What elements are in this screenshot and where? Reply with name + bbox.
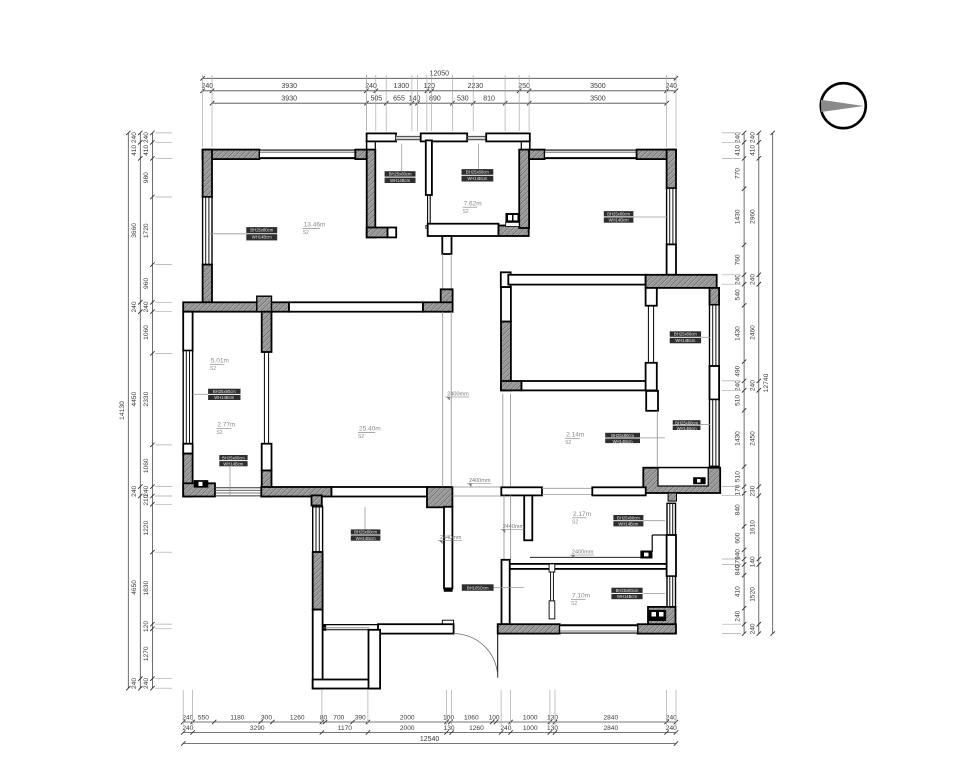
svg-text:240: 240	[143, 678, 150, 689]
svg-text:240: 240	[735, 610, 742, 621]
svg-text:2440mm: 2440mm	[503, 524, 525, 530]
svg-text:770: 770	[735, 168, 742, 179]
svg-text:5.01m: 5.01m	[211, 358, 229, 365]
svg-text:240: 240	[182, 715, 193, 722]
svg-text:1220: 1220	[143, 521, 150, 536]
svg-text:2.14m: 2.14m	[566, 432, 584, 439]
svg-text:120: 120	[423, 83, 435, 90]
svg-text:240: 240	[143, 301, 150, 312]
svg-text:WH14Bcm: WH14Bcm	[675, 338, 696, 343]
svg-text:1170: 1170	[338, 725, 353, 732]
svg-text:490: 490	[735, 365, 742, 376]
svg-text:BH25x80cm: BH25x80cm	[389, 172, 412, 177]
svg-text:410: 410	[143, 145, 150, 156]
svg-text:655: 655	[393, 96, 405, 103]
svg-text:170: 170	[735, 484, 742, 495]
svg-text:1610: 1610	[749, 520, 756, 535]
svg-text:980: 980	[143, 172, 150, 183]
svg-text:240: 240	[749, 274, 756, 285]
svg-text:BH25x80cm: BH25x80cm	[250, 227, 273, 232]
svg-text:510: 510	[735, 395, 742, 406]
svg-text:120: 120	[143, 621, 150, 632]
svg-text:240: 240	[365, 83, 377, 90]
svg-text:3930: 3930	[281, 83, 297, 90]
svg-text:BH25x80cm: BH25x80cm	[607, 211, 630, 216]
svg-text:WH14Bcm: WH14Bcm	[356, 536, 377, 541]
svg-text:WH14Bcm: WH14Bcm	[618, 522, 639, 527]
svg-text:2.77m: 2.77m	[217, 422, 235, 429]
svg-text:1060: 1060	[143, 325, 150, 340]
svg-text:2840: 2840	[603, 725, 618, 732]
svg-text:1060: 1060	[143, 458, 150, 473]
svg-text:4650: 4650	[131, 580, 138, 595]
svg-text:2400mm: 2400mm	[469, 478, 491, 484]
svg-text:130: 130	[547, 715, 558, 722]
svg-text:100: 100	[443, 715, 454, 722]
svg-text:2960: 2960	[749, 209, 756, 224]
svg-text:2.17m: 2.17m	[573, 511, 591, 518]
svg-text:WH14Bcm: WH14Bcm	[613, 439, 634, 444]
svg-text:1260: 1260	[469, 725, 484, 732]
svg-text:3930: 3930	[281, 96, 297, 103]
svg-text:600: 600	[735, 532, 742, 543]
svg-text:890: 890	[429, 96, 441, 103]
svg-text:1000: 1000	[523, 715, 538, 722]
svg-text:300: 300	[261, 715, 272, 722]
svg-text:S2: S2	[216, 430, 222, 436]
svg-text:3660: 3660	[131, 223, 138, 238]
svg-text:3500: 3500	[590, 96, 606, 103]
svg-text:BH25x80cm: BH25x80cm	[611, 433, 634, 438]
svg-text:240: 240	[665, 83, 677, 90]
svg-text:WH14Bcm: WH14Bcm	[617, 594, 638, 599]
svg-text:2400mm: 2400mm	[572, 550, 594, 556]
svg-text:BH25x80cm: BH25x80cm	[617, 515, 640, 520]
svg-text:410: 410	[749, 145, 756, 156]
svg-text:12540: 12540	[420, 736, 440, 743]
svg-text:250: 250	[518, 83, 530, 90]
svg-text:240: 240	[749, 623, 756, 634]
svg-text:240: 240	[131, 301, 138, 312]
svg-text:240: 240	[749, 380, 756, 391]
svg-text:240: 240	[182, 725, 193, 732]
svg-text:BH25x80cm: BH25x80cm	[213, 389, 236, 394]
svg-text:1430: 1430	[735, 431, 742, 446]
svg-text:530: 530	[457, 96, 469, 103]
svg-text:2330: 2330	[143, 391, 150, 406]
svg-text:210: 210	[143, 494, 150, 505]
svg-text:BH105Ocm: BH105Ocm	[467, 586, 489, 591]
svg-text:840: 840	[735, 564, 742, 575]
svg-text:240: 240	[143, 132, 150, 143]
svg-text:3500: 3500	[590, 83, 606, 90]
svg-text:140: 140	[749, 556, 756, 567]
svg-text:130: 130	[547, 725, 558, 732]
svg-text:12050: 12050	[430, 71, 450, 78]
svg-text:S2: S2	[463, 209, 469, 215]
svg-text:WH14Bcm: WH14Bcm	[223, 461, 244, 466]
svg-text:3290: 3290	[250, 725, 265, 732]
svg-text:WH14Bcm: WH14Bcm	[677, 426, 698, 431]
svg-text:S2: S2	[572, 520, 578, 526]
svg-text:1060: 1060	[464, 715, 479, 722]
svg-text:1270: 1270	[143, 646, 150, 661]
svg-text:140: 140	[409, 96, 421, 103]
svg-text:505: 505	[370, 96, 382, 103]
svg-text:100: 100	[489, 715, 500, 722]
svg-text:2230: 2230	[468, 83, 484, 90]
svg-text:1720: 1720	[143, 223, 150, 238]
svg-text:S2: S2	[210, 366, 216, 372]
svg-text:240: 240	[735, 380, 742, 391]
svg-text:WH14Bcm: WH14Bcm	[214, 395, 235, 400]
svg-text:510: 510	[735, 471, 742, 482]
svg-text:80: 80	[320, 715, 328, 722]
svg-text:2400mm: 2400mm	[447, 392, 469, 398]
svg-text:BH25x80cm: BH25x80cm	[616, 588, 639, 593]
svg-text:1830: 1830	[143, 581, 150, 596]
svg-text:240: 240	[666, 715, 677, 722]
svg-text:1300: 1300	[394, 83, 410, 90]
svg-text:7.62m: 7.62m	[464, 200, 482, 207]
svg-text:390: 390	[355, 715, 366, 722]
svg-text:1430: 1430	[735, 209, 742, 224]
svg-text:960: 960	[143, 278, 150, 289]
svg-text:S2: S2	[303, 230, 309, 236]
svg-text:BH25x80cm: BH25x80cm	[354, 530, 377, 535]
svg-text:S2: S2	[571, 601, 577, 607]
svg-text:WH14Bcm: WH14Bcm	[252, 235, 273, 240]
svg-text:25.40m: 25.40m	[359, 426, 381, 433]
svg-text:S2: S2	[565, 440, 571, 446]
svg-text:230: 230	[749, 485, 756, 496]
svg-text:2450: 2450	[749, 431, 756, 446]
svg-text:410: 410	[735, 145, 742, 156]
svg-text:840: 840	[735, 504, 742, 515]
svg-text:4450: 4450	[131, 391, 138, 406]
svg-text:240: 240	[666, 725, 677, 732]
svg-text:12740: 12740	[763, 373, 770, 392]
svg-text:240: 240	[131, 678, 138, 689]
svg-text:240: 240	[500, 725, 511, 732]
svg-text:240: 240	[131, 132, 138, 143]
svg-text:2000: 2000	[400, 725, 415, 732]
svg-text:1180: 1180	[230, 715, 245, 722]
svg-text:240: 240	[735, 274, 742, 285]
svg-text:WH14Bcm: WH14Bcm	[390, 178, 411, 183]
svg-text:540: 540	[735, 289, 742, 300]
svg-text:240: 240	[201, 83, 213, 90]
svg-text:2840: 2840	[603, 715, 618, 722]
svg-text:810: 810	[483, 96, 495, 103]
svg-text:700: 700	[333, 715, 344, 722]
svg-text:BH25x80cm: BH25x80cm	[674, 332, 697, 337]
svg-text:2460: 2460	[749, 325, 756, 340]
svg-text:410: 410	[735, 586, 742, 597]
svg-text:S2: S2	[358, 434, 364, 440]
svg-text:240: 240	[131, 485, 138, 496]
svg-text:WH14Bcm: WH14Bcm	[609, 218, 630, 223]
svg-text:2440mm: 2440mm	[440, 535, 462, 541]
svg-text:1260: 1260	[290, 715, 305, 722]
svg-text:7.10m: 7.10m	[572, 593, 590, 600]
svg-text:410: 410	[131, 145, 138, 156]
svg-text:240: 240	[735, 132, 742, 143]
svg-text:WH14Bcm: WH14Bcm	[467, 176, 488, 181]
svg-text:1430: 1430	[735, 326, 742, 341]
svg-text:BH25x80cm: BH25x80cm	[222, 455, 245, 460]
svg-text:1520: 1520	[749, 587, 756, 602]
svg-text:2000: 2000	[400, 715, 415, 722]
svg-text:760: 760	[735, 254, 742, 265]
svg-text:130: 130	[444, 725, 455, 732]
svg-text:13.46m: 13.46m	[304, 222, 326, 229]
svg-text:550: 550	[198, 715, 209, 722]
svg-text:BH25x80cm: BH25x80cm	[466, 169, 489, 174]
svg-text:240: 240	[749, 132, 756, 143]
svg-text:14130: 14130	[119, 401, 126, 420]
svg-text:1000: 1000	[523, 725, 538, 732]
svg-text:BH25x80cm: BH25x80cm	[675, 421, 698, 426]
